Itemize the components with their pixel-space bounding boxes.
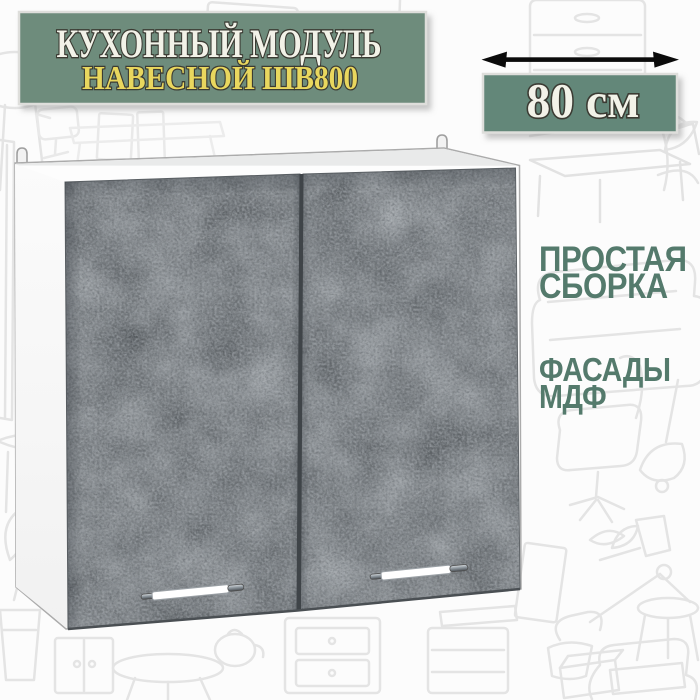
svg-text:80 см: 80 см [527, 73, 640, 128]
svg-text:НАВЕСНОЙ ШВ800: НАВЕСНОЙ ШВ800 [82, 60, 358, 97]
